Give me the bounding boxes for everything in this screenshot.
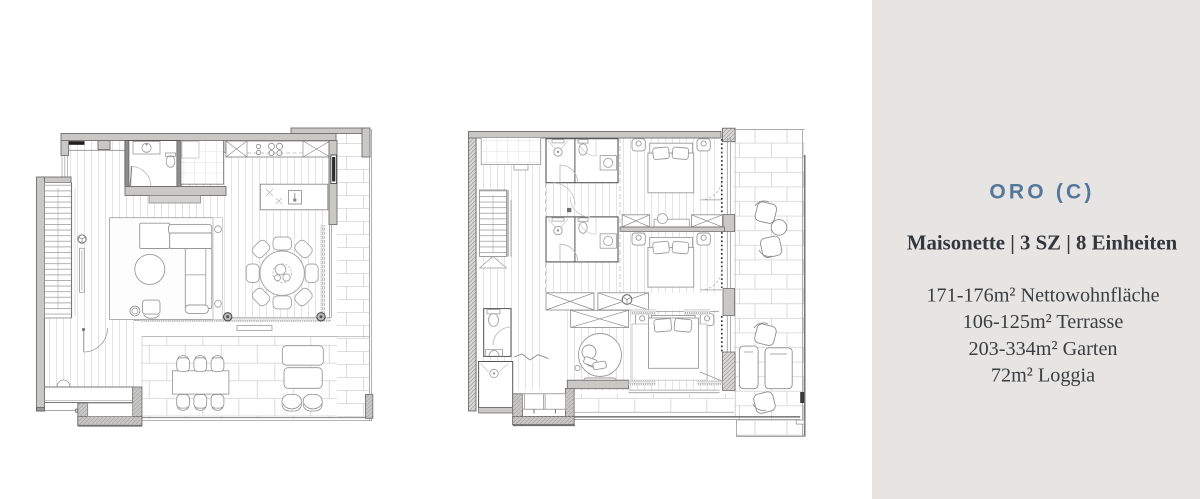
svg-text:203-334m² Garten: 203-334m² Garten <box>968 338 1117 360</box>
svg-text:Maisonette | 3 SZ | 8 Einheite: Maisonette | 3 SZ | 8 Einheiten <box>907 232 1178 255</box>
svg-text:106-125m² Terrasse: 106-125m² Terrasse <box>963 311 1124 333</box>
svg-text:72m² Loggia: 72m² Loggia <box>991 365 1095 387</box>
svg-text:ORO (C): ORO (C) <box>989 181 1094 204</box>
svg-text:171-176m² Nettowohnfläche: 171-176m² Nettowohnfläche <box>926 284 1159 306</box>
